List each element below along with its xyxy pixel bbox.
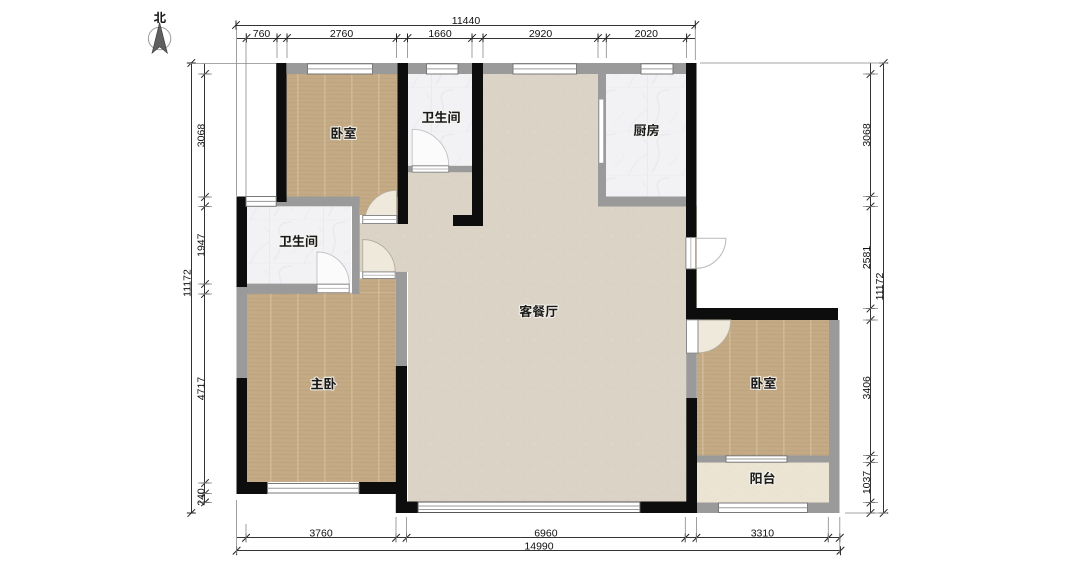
svg-text:11172: 11172 xyxy=(874,273,886,301)
svg-text:3310: 3310 xyxy=(751,527,775,539)
svg-text:1947: 1947 xyxy=(196,233,208,257)
svg-text:3760: 3760 xyxy=(309,527,333,539)
svg-text:760: 760 xyxy=(253,28,271,40)
svg-text:6960: 6960 xyxy=(534,527,558,539)
svg-text:2920: 2920 xyxy=(529,28,553,40)
svg-text:11440: 11440 xyxy=(452,15,481,27)
svg-text:2020: 2020 xyxy=(635,28,659,40)
svg-text:11172: 11172 xyxy=(182,269,194,297)
svg-text:1660: 1660 xyxy=(428,28,452,40)
svg-text:2760: 2760 xyxy=(330,28,354,40)
svg-text:4717: 4717 xyxy=(196,377,208,401)
svg-text:3406: 3406 xyxy=(861,376,873,400)
svg-text:2581: 2581 xyxy=(861,246,873,270)
svg-text:3068: 3068 xyxy=(861,123,873,147)
svg-text:14990: 14990 xyxy=(524,541,553,553)
svg-text:1037: 1037 xyxy=(861,471,873,495)
svg-text:240: 240 xyxy=(196,488,208,506)
svg-text:3068: 3068 xyxy=(196,124,208,148)
